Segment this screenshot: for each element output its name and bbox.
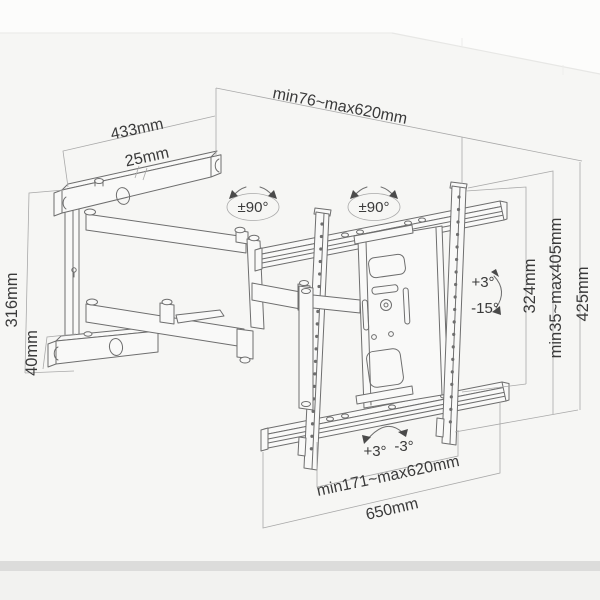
beam-bolt (95, 179, 104, 184)
floor-band (0, 561, 600, 571)
plate-height-label: 324mm (521, 258, 539, 313)
swivel-right-label: ±90° (359, 199, 390, 216)
tilt-down-label: -15° (471, 300, 499, 317)
product-dimension-image: 433mm 25mm min76~max620mm ±90° ±90° (0, 0, 600, 600)
level-minus-label: -3° (394, 438, 413, 455)
tilt-up-label: +3° (471, 274, 494, 291)
wall-mount-diagram: 433mm 25mm min76~max620mm ±90° ±90° (0, 0, 600, 600)
strip-tab (436, 418, 444, 437)
strip-tab (298, 437, 306, 456)
wall-plate-height-label: 316mm (3, 272, 21, 327)
floor-below (0, 571, 600, 600)
beam-bolt (84, 332, 92, 336)
arm-thickness-label: 40mm (23, 330, 41, 376)
level-plus-label: +3° (363, 443, 386, 460)
total-height-label: 425mm (574, 266, 592, 321)
height-range-label: min35~max405mm (547, 218, 565, 359)
swivel-left-label: ±90° (238, 199, 269, 216)
center-plate (354, 225, 448, 408)
